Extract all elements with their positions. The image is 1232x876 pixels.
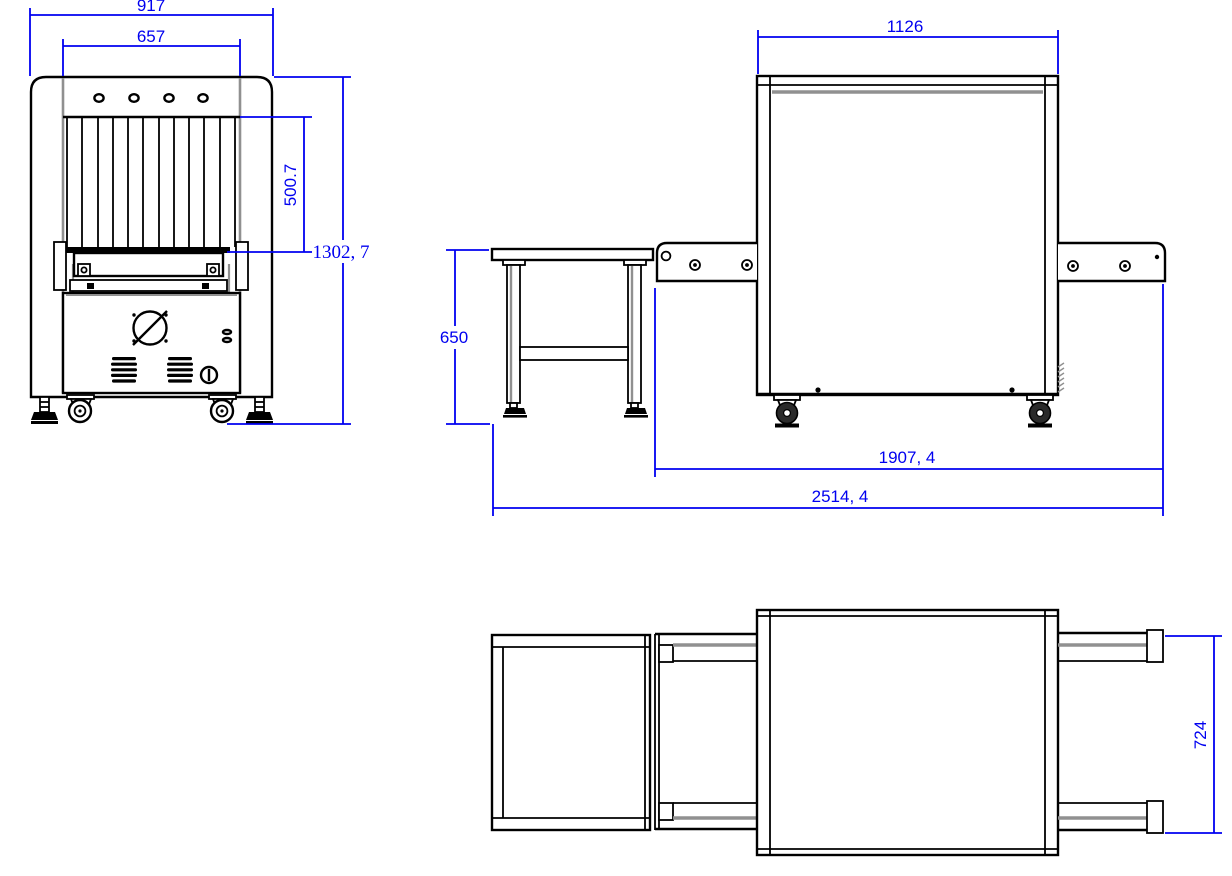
front-foot-left: [31, 397, 58, 424]
dimension-overall-depth: 724: [1165, 636, 1222, 833]
dim-label-650: 650: [440, 328, 468, 347]
front-caster-right: [209, 395, 236, 422]
table-cross-brace: [520, 347, 628, 360]
top-exit-conveyor: [1058, 630, 1163, 833]
front-caster-left: [67, 395, 94, 422]
dim-label-1302-7: 1302, 7: [313, 242, 370, 263]
front-view: 917 657 500.7 1302, 7: [30, 0, 370, 424]
dimension-body-length: 1126: [758, 17, 1058, 74]
front-foot-right: [246, 397, 273, 424]
table-foot-right: [624, 403, 648, 418]
right-roller-end: [207, 264, 219, 276]
lower-tray-post-right: [202, 283, 209, 289]
top-entry-conveyor: [655, 634, 757, 830]
front-cabinet: [63, 293, 240, 393]
right-roller-bracket: [236, 242, 248, 290]
dim-label-724: 724: [1191, 721, 1210, 749]
dim-label-1126: 1126: [887, 17, 924, 36]
table-leg-left: [507, 265, 520, 403]
left-roller-end: [78, 264, 90, 276]
top-feed-table: [492, 635, 650, 830]
drawing-canvas: 917 657 500.7 1302, 7: [0, 0, 1232, 876]
side-view: 1126 650 1907, 4 2514, 4: [440, 17, 1165, 516]
roller-tray: [74, 253, 223, 276]
dim-label-2514-4: 2514, 4: [812, 487, 869, 506]
dim-label-657: 657: [137, 27, 165, 46]
side-body-bottom-dot-right: [1009, 387, 1014, 392]
dimension-table-height: 650: [440, 250, 490, 424]
dimension-overall-length: 2514, 4: [493, 424, 1163, 516]
dimension-tunnel-width: 657: [63, 27, 240, 76]
top-scanner-body: [757, 610, 1058, 855]
feed-table: [492, 249, 653, 418]
left-roller-bracket: [54, 242, 66, 290]
side-caster-left: [774, 395, 800, 428]
dim-label-500-7: 500.7: [281, 164, 300, 207]
dim-label-1907-4: 1907, 4: [879, 448, 936, 467]
top-view: 724: [492, 610, 1222, 855]
table-foot-left: [503, 403, 527, 418]
table-leg-right: [628, 265, 641, 403]
lower-tray-post-left: [87, 283, 94, 289]
dim-label-917: 917: [137, 0, 165, 15]
side-body-bottom-dot-left: [815, 387, 820, 392]
three-view-drawing: 917 657 500.7 1302, 7: [0, 0, 1232, 876]
side-body-outline: [757, 76, 1058, 395]
side-caster-right: [1027, 395, 1053, 428]
